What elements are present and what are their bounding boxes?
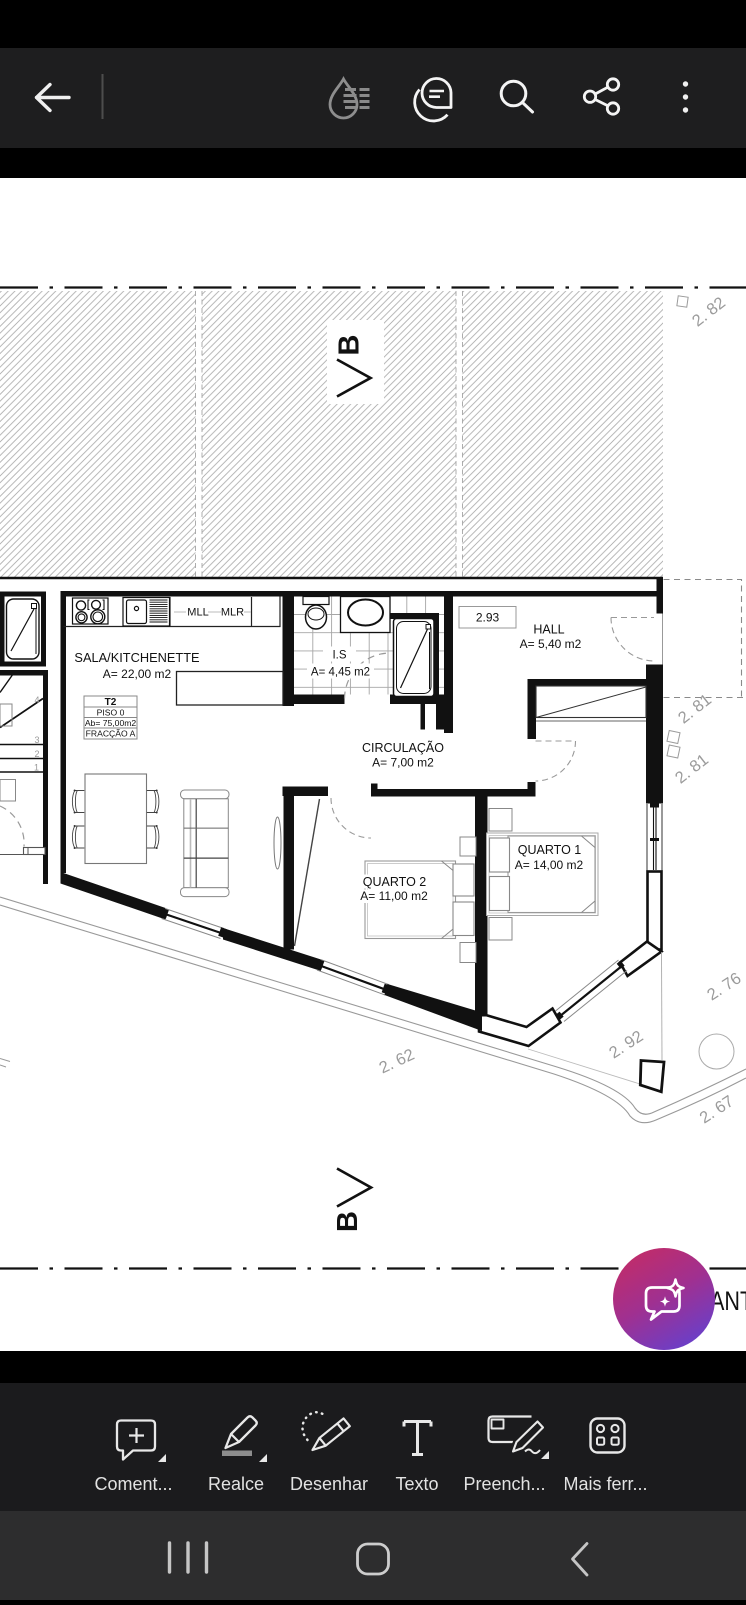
svg-text:QUARTO 2: QUARTO 2 bbox=[363, 875, 426, 889]
svg-text:2: 2 bbox=[34, 749, 39, 759]
svg-text:FRACÇÃO A: FRACÇÃO A bbox=[86, 729, 136, 739]
svg-text:SALA/KITCHENETTE: SALA/KITCHENETTE bbox=[74, 650, 199, 665]
svg-text:B: B bbox=[334, 335, 366, 356]
svg-text:Coment...: Coment... bbox=[94, 1474, 172, 1494]
svg-text:Mais ferr...: Mais ferr... bbox=[563, 1474, 647, 1494]
svg-text:Realce: Realce bbox=[208, 1474, 264, 1494]
svg-text:A= 14,00 m2: A= 14,00 m2 bbox=[515, 858, 584, 872]
svg-text:T2: T2 bbox=[105, 697, 117, 708]
svg-text:A= 4,45 m2: A= 4,45 m2 bbox=[311, 667, 370, 679]
svg-text:I.S: I.S bbox=[332, 650, 346, 662]
svg-text:Ab= 75,00m2: Ab= 75,00m2 bbox=[85, 718, 137, 728]
svg-text:2.93: 2.93 bbox=[476, 611, 500, 625]
svg-text:HALL: HALL bbox=[533, 623, 564, 637]
svg-text:A= 7,00 m2: A= 7,00 m2 bbox=[372, 756, 434, 770]
svg-text:3: 3 bbox=[34, 735, 39, 745]
svg-text:2. 62: 2. 62 bbox=[376, 1046, 417, 1078]
svg-text:2. 92: 2. 92 bbox=[606, 1027, 647, 1062]
svg-text:1: 1 bbox=[34, 763, 39, 773]
svg-text:QUARTO 1: QUARTO 1 bbox=[518, 843, 581, 857]
svg-text:2. 76: 2. 76 bbox=[704, 969, 745, 1004]
svg-text:ANTA: ANTA bbox=[710, 1286, 746, 1316]
svg-text:A= 11,00 m2: A= 11,00 m2 bbox=[360, 889, 428, 903]
svg-text:A= 22,00 m2: A= 22,00 m2 bbox=[103, 667, 172, 681]
svg-text:4: 4 bbox=[34, 695, 39, 705]
svg-text:Texto: Texto bbox=[395, 1474, 438, 1494]
svg-text:CIRCULAÇÃO: CIRCULAÇÃO bbox=[362, 741, 444, 755]
svg-text:2. 67: 2. 67 bbox=[696, 1092, 737, 1127]
svg-text:Preench...: Preench... bbox=[463, 1474, 545, 1494]
svg-text:MLL: MLL bbox=[187, 607, 208, 619]
svg-text:2. 81: 2. 81 bbox=[675, 691, 715, 728]
svg-text:A= 5,40 m2: A= 5,40 m2 bbox=[520, 637, 582, 651]
svg-text:Desenhar: Desenhar bbox=[290, 1474, 368, 1494]
svg-text:B: B bbox=[332, 1211, 364, 1232]
svg-text:MLR: MLR bbox=[221, 607, 244, 619]
svg-text:2. 82: 2. 82 bbox=[689, 294, 729, 331]
svg-text:PISO 0: PISO 0 bbox=[97, 708, 125, 718]
